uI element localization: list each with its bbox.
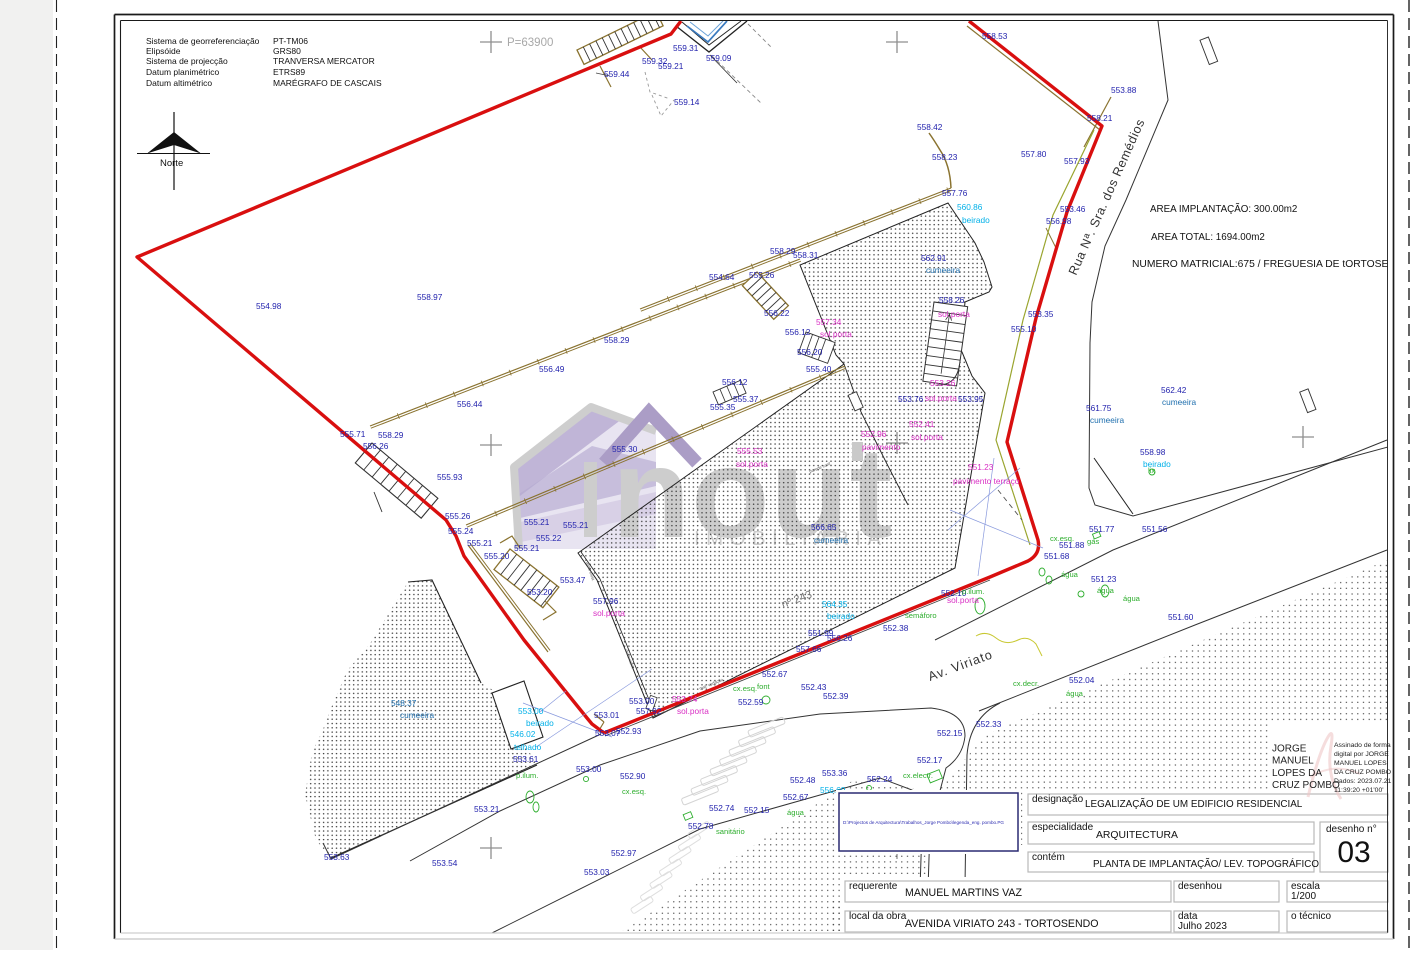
svg-text:cumeeira: cumeeira: [814, 535, 849, 545]
svg-text:555.21: 555.21: [524, 517, 550, 527]
svg-text:553.01: 553.01: [594, 710, 620, 720]
svg-text:Datum altimétrico: Datum altimétrico: [146, 78, 212, 88]
svg-text:554.98: 554.98: [256, 301, 282, 311]
svg-text:553.00: 553.00: [576, 764, 602, 774]
svg-text:requerente: requerente: [849, 881, 898, 892]
svg-text:555.35: 555.35: [710, 402, 736, 412]
svg-text:556.49: 556.49: [539, 364, 565, 374]
svg-text:555.22: 555.22: [536, 533, 562, 543]
svg-text:sol.porta: sol.porta: [938, 309, 970, 319]
svg-text:MANUEL LOPES: MANUEL LOPES: [1334, 760, 1387, 767]
svg-text:555.24: 555.24: [448, 526, 474, 536]
svg-text:556.22: 556.22: [764, 308, 790, 318]
svg-text:D:\Projectos de Arquitectura\T: D:\Projectos de Arquitectura\Trabalhos_J…: [843, 820, 1004, 825]
svg-text:DA CRUZ POMBO: DA CRUZ POMBO: [1334, 769, 1391, 776]
svg-text:551.77: 551.77: [1089, 524, 1115, 534]
svg-text:sanitário: sanitário: [716, 827, 745, 836]
svg-text:557.93: 557.93: [1064, 156, 1090, 166]
svg-text:552.67: 552.67: [783, 792, 809, 802]
svg-text:555.26: 555.26: [749, 270, 775, 280]
svg-text:552.15: 552.15: [744, 805, 770, 815]
svg-text:lix: lix: [1148, 466, 1155, 475]
svg-text:553.47: 553.47: [560, 575, 586, 585]
svg-text:AREA TOTAL: 1694.00m2: AREA TOTAL: 1694.00m2: [1151, 232, 1265, 243]
svg-text:P=63900: P=63900: [507, 37, 553, 49]
svg-text:553.76: 553.76: [898, 394, 924, 404]
svg-text:sol.porta: sol.porta: [736, 459, 768, 469]
svg-text:Sistema de projecção: Sistema de projecção: [146, 56, 228, 66]
svg-text:designação: designação: [1032, 794, 1084, 805]
svg-text:PT-TM06: PT-TM06: [273, 36, 308, 46]
svg-text:pavimento: pavimento: [862, 442, 901, 452]
svg-text:água: água: [1061, 570, 1079, 579]
svg-text:552.67: 552.67: [762, 669, 788, 679]
svg-text:552.59: 552.59: [738, 697, 764, 707]
svg-text:558.29: 558.29: [604, 335, 630, 345]
svg-text:552.39: 552.39: [823, 691, 849, 701]
svg-text:água: água: [1097, 586, 1115, 595]
svg-text:AREA IMPLANTAÇÃO: 300.00m2: AREA IMPLANTAÇÃO: 300.00m2: [1150, 204, 1297, 215]
svg-text:555.71: 555.71: [340, 429, 366, 439]
svg-text:MARÉGRAFO DE CASCAIS: MARÉGRAFO DE CASCAIS: [273, 78, 382, 88]
svg-text:546.02: 546.02: [510, 729, 536, 739]
svg-text:552.41: 552.41: [909, 419, 935, 429]
svg-text:558.26: 558.26: [939, 295, 965, 305]
svg-text:font: font: [757, 682, 771, 691]
svg-text:Elipsóide: Elipsóide: [146, 46, 181, 56]
svg-text:555.20: 555.20: [484, 551, 510, 561]
svg-text:cx.esq.: cx.esq.: [1050, 534, 1074, 543]
svg-text:558.98: 558.98: [1140, 447, 1166, 457]
svg-text:o técnico: o técnico: [1291, 911, 1331, 922]
svg-text:555.30: 555.30: [612, 444, 638, 454]
svg-text:553.26: 553.26: [930, 378, 956, 388]
svg-text:água: água: [1123, 594, 1141, 603]
svg-text:560.86: 560.86: [957, 202, 983, 212]
svg-text:562.42: 562.42: [1161, 385, 1187, 395]
svg-text:contém: contém: [1032, 852, 1065, 863]
svg-text:558.42: 558.42: [917, 122, 943, 132]
svg-text:cx.decr.: cx.decr.: [1013, 679, 1039, 688]
svg-text:552.04: 552.04: [1069, 675, 1095, 685]
svg-text:559.21: 559.21: [658, 61, 684, 71]
svg-text:555.37: 555.37: [733, 394, 759, 404]
svg-text:beirado: beirado: [962, 215, 990, 225]
svg-text:564.35: 564.35: [822, 599, 848, 609]
svg-text:cx.electr.: cx.electr.: [903, 771, 933, 780]
svg-text:cumeeira: cumeeira: [1090, 415, 1125, 425]
svg-text:556.98: 556.98: [1046, 216, 1072, 226]
svg-text:555.21: 555.21: [467, 538, 493, 548]
svg-text:559.14: 559.14: [674, 97, 700, 107]
svg-text:beirado: beirado: [827, 611, 855, 621]
svg-text:558.21: 558.21: [1087, 113, 1113, 123]
svg-text:553.00: 553.00: [629, 696, 655, 706]
svg-text:sol.porta: sol.porta: [593, 608, 625, 618]
svg-text:555.53: 555.53: [737, 446, 763, 456]
svg-text:1/200: 1/200: [1291, 891, 1316, 902]
svg-text:557.80: 557.80: [1021, 149, 1047, 159]
svg-text:548.37: 548.37: [391, 698, 417, 708]
svg-text:559.44: 559.44: [604, 69, 630, 79]
svg-text:553.63: 553.63: [324, 852, 350, 862]
svg-text:digital por JORGE: digital por JORGE: [1334, 751, 1389, 758]
svg-text:552.24: 552.24: [867, 774, 893, 784]
svg-text:553.95: 553.95: [958, 394, 984, 404]
svg-text:sol.porta: sol.porta: [947, 595, 979, 605]
svg-text:553.35: 553.35: [1028, 309, 1054, 319]
svg-text:556.20: 556.20: [797, 347, 823, 357]
svg-text:LOPES DA: LOPES DA: [1272, 768, 1322, 779]
svg-text:GRS80: GRS80: [273, 46, 301, 56]
svg-text:558.29: 558.29: [378, 430, 404, 440]
svg-text:553.21: 553.21: [474, 804, 500, 814]
svg-text:552.74: 552.74: [709, 803, 735, 813]
svg-text:água: água: [1066, 689, 1084, 698]
svg-text:559.09: 559.09: [706, 53, 732, 63]
svg-text:562.91: 562.91: [921, 253, 947, 263]
svg-text:beirado: beirado: [526, 718, 554, 728]
svg-text:551.56: 551.56: [1142, 524, 1168, 534]
svg-text:pavimento terraço: pavimento terraço: [953, 476, 1020, 486]
svg-text:TRANVERSA MERCATOR: TRANVERSA MERCATOR: [273, 56, 375, 66]
svg-text:552.48: 552.48: [790, 775, 816, 785]
svg-text:CRUZ POMBO: CRUZ POMBO: [1272, 780, 1340, 791]
svg-text:desenho n°: desenho n°: [1326, 824, 1377, 835]
svg-text:555.40: 555.40: [806, 364, 832, 374]
svg-text:556.12: 556.12: [722, 377, 748, 387]
svg-text:553.54: 553.54: [432, 858, 458, 868]
svg-text:557.34: 557.34: [816, 317, 842, 327]
svg-text:JORGE: JORGE: [1272, 744, 1307, 755]
svg-text:557.76: 557.76: [942, 188, 968, 198]
svg-text:555.21: 555.21: [563, 520, 589, 530]
svg-text:553.74: 553.74: [672, 694, 698, 704]
svg-text:sol.porta: sol.porta: [911, 432, 943, 442]
svg-text:Assinado de forma: Assinado de forma: [1334, 742, 1391, 749]
svg-text:556.26: 556.26: [363, 441, 389, 451]
svg-text:558.29: 558.29: [770, 246, 796, 256]
svg-text:553.88: 553.88: [1111, 85, 1137, 95]
svg-text:telhado: telhado: [514, 742, 542, 752]
svg-text:Sistema de georreferenciação: Sistema de georreferenciação: [146, 36, 260, 46]
svg-text:cx.esq.: cx.esq.: [733, 684, 757, 693]
svg-text:556.26: 556.26: [827, 633, 853, 643]
svg-text:552.15: 552.15: [937, 728, 963, 738]
svg-text:552.93: 552.93: [616, 726, 642, 736]
svg-text:553.46: 553.46: [1060, 204, 1086, 214]
svg-text:558.53: 558.53: [982, 31, 1008, 41]
svg-text:p.ilum.: p.ilum.: [516, 771, 538, 780]
svg-text:AVENIDA VIRIATO 243 - TORTOSEN: AVENIDA VIRIATO 243 - TORTOSENDO: [905, 918, 1099, 930]
svg-text:551.23: 551.23: [1091, 574, 1117, 584]
svg-text:552.38: 552.38: [883, 623, 909, 633]
svg-text:água: água: [787, 808, 805, 817]
svg-text:558.97: 558.97: [417, 292, 443, 302]
svg-text:556.44: 556.44: [457, 399, 483, 409]
svg-text:MANUEL: MANUEL: [1272, 756, 1314, 767]
svg-text:561.75: 561.75: [1086, 403, 1112, 413]
svg-text:sol.porta: sol.porta: [820, 329, 852, 339]
svg-text:gás: gás: [1087, 537, 1099, 546]
svg-text:Julho 2023: Julho 2023: [1178, 921, 1227, 932]
svg-text:PLANTA DE IMPLANTAÇÃO/ LEV. TO: PLANTA DE IMPLANTAÇÃO/ LEV. TOPOGRÁFICO: [1093, 859, 1319, 870]
svg-text:553.00: 553.00: [518, 706, 544, 716]
svg-text:555.26: 555.26: [445, 511, 471, 521]
svg-text:555.21: 555.21: [514, 543, 540, 553]
svg-text:551.23: 551.23: [968, 462, 994, 472]
svg-text:desenhou: desenhou: [1178, 881, 1222, 892]
svg-text:cumeeira: cumeeira: [1162, 397, 1197, 407]
svg-text:especialidade: especialidade: [1032, 822, 1094, 833]
svg-text:551.60: 551.60: [1168, 612, 1194, 622]
svg-text:03: 03: [1337, 836, 1370, 869]
svg-text:552.78: 552.78: [688, 821, 714, 831]
svg-text:552.96: 552.96: [861, 429, 887, 439]
svg-text:sol.porta: sol.porta: [925, 393, 957, 403]
svg-text:sol.porta: sol.porta: [677, 706, 709, 716]
svg-text:552.90: 552.90: [620, 771, 646, 781]
svg-text:ARQUITECTURA: ARQUITECTURA: [1096, 830, 1178, 841]
svg-text:559.31: 559.31: [673, 43, 699, 53]
svg-text:553.61: 553.61: [513, 754, 539, 764]
svg-text:semáforo: semáforo: [905, 611, 937, 620]
svg-text:553.20: 553.20: [527, 587, 553, 597]
svg-text:552.17: 552.17: [917, 755, 943, 765]
svg-text:local da obra: local da obra: [849, 911, 907, 922]
svg-text:Datum planimétrico: Datum planimétrico: [146, 67, 219, 77]
svg-text:554.64: 554.64: [709, 272, 735, 282]
svg-text:Dados: 2023.07.21: Dados: 2023.07.21: [1334, 778, 1392, 785]
svg-text:557.96: 557.96: [593, 596, 619, 606]
svg-text:cx.esq.: cx.esq.: [622, 787, 646, 796]
svg-text:555.10: 555.10: [1011, 324, 1037, 334]
svg-text:555.93: 555.93: [437, 472, 463, 482]
svg-text:Norte: Norte: [160, 158, 183, 169]
svg-text:MANUEL MARTINS VAZ: MANUEL MARTINS VAZ: [905, 887, 1022, 899]
svg-text:ETRS89: ETRS89: [273, 67, 305, 77]
svg-text:cumeeira: cumeeira: [926, 265, 961, 275]
svg-text:553.36: 553.36: [822, 768, 848, 778]
svg-text:552.33: 552.33: [976, 719, 1002, 729]
svg-text:557.66: 557.66: [796, 644, 822, 654]
svg-text:LEGALIZAÇÃO DE UM EDIFICIO RES: LEGALIZAÇÃO DE UM EDIFICIO RESIDENCIAL: [1085, 799, 1303, 810]
svg-text:cumeeira: cumeeira: [400, 710, 435, 720]
svg-text:553.03: 553.03: [584, 867, 610, 877]
svg-text:NUMERO MATRICIAL:675 / FREGUES: NUMERO MATRICIAL:675 / FREGUESIA DE tORT…: [1132, 259, 1411, 270]
svg-text:566.65: 566.65: [811, 522, 837, 532]
svg-text:552.97: 552.97: [611, 848, 637, 858]
svg-text:558.23: 558.23: [932, 152, 958, 162]
svg-text:557.92: 557.92: [636, 706, 662, 716]
svg-text:11:39:20 +01'00': 11:39:20 +01'00': [1334, 787, 1384, 794]
svg-text:556.12: 556.12: [785, 327, 811, 337]
svg-text:551.68: 551.68: [1044, 551, 1070, 561]
svg-text:558.31: 558.31: [793, 250, 819, 260]
